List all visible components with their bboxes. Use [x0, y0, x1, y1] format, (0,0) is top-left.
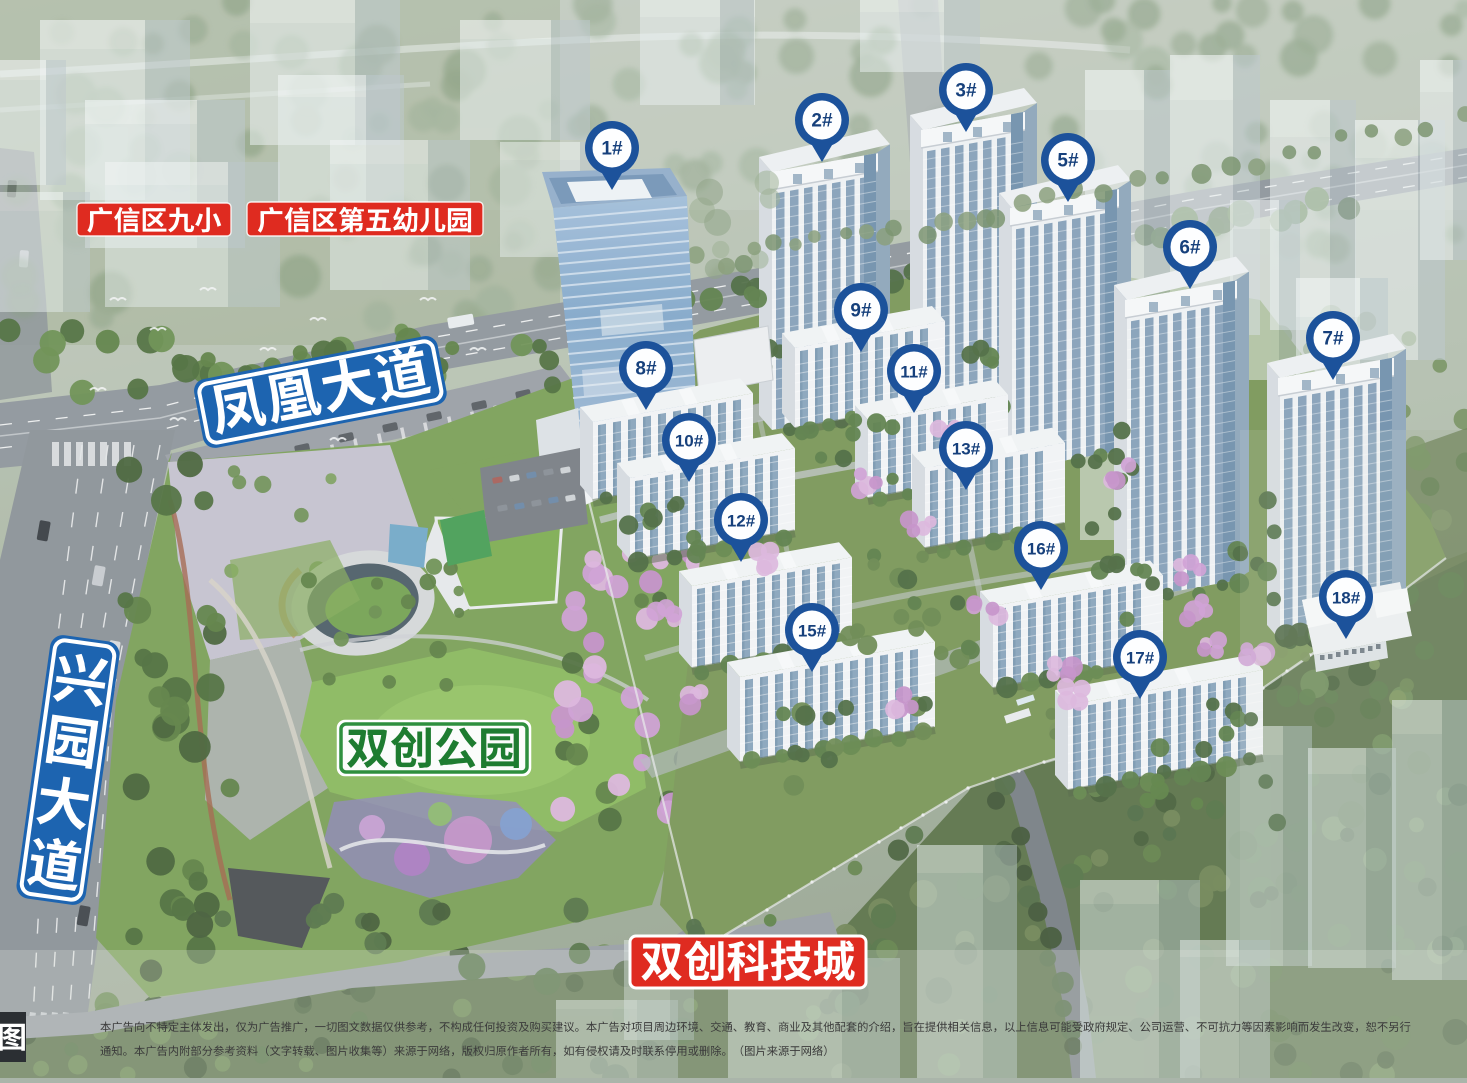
svg-text:1#: 1# [601, 139, 623, 160]
svg-text:16#: 16# [1027, 540, 1056, 559]
svg-text:10#: 10# [675, 432, 704, 451]
svg-text:15#: 15# [798, 622, 827, 641]
svg-text:7#: 7# [1322, 329, 1344, 350]
svg-text:13#: 13# [952, 440, 981, 459]
svg-text:3#: 3# [955, 81, 977, 102]
svg-text:5#: 5# [1057, 151, 1079, 172]
svg-text:8#: 8# [635, 359, 657, 380]
svg-text:17#: 17# [1126, 649, 1155, 668]
svg-text:9#: 9# [850, 301, 872, 322]
svg-text:6#: 6# [1179, 238, 1201, 259]
svg-text:18#: 18# [1332, 589, 1361, 608]
svg-text:11#: 11# [900, 363, 928, 382]
svg-text:2#: 2# [811, 111, 833, 132]
svg-text:12#: 12# [727, 512, 756, 531]
